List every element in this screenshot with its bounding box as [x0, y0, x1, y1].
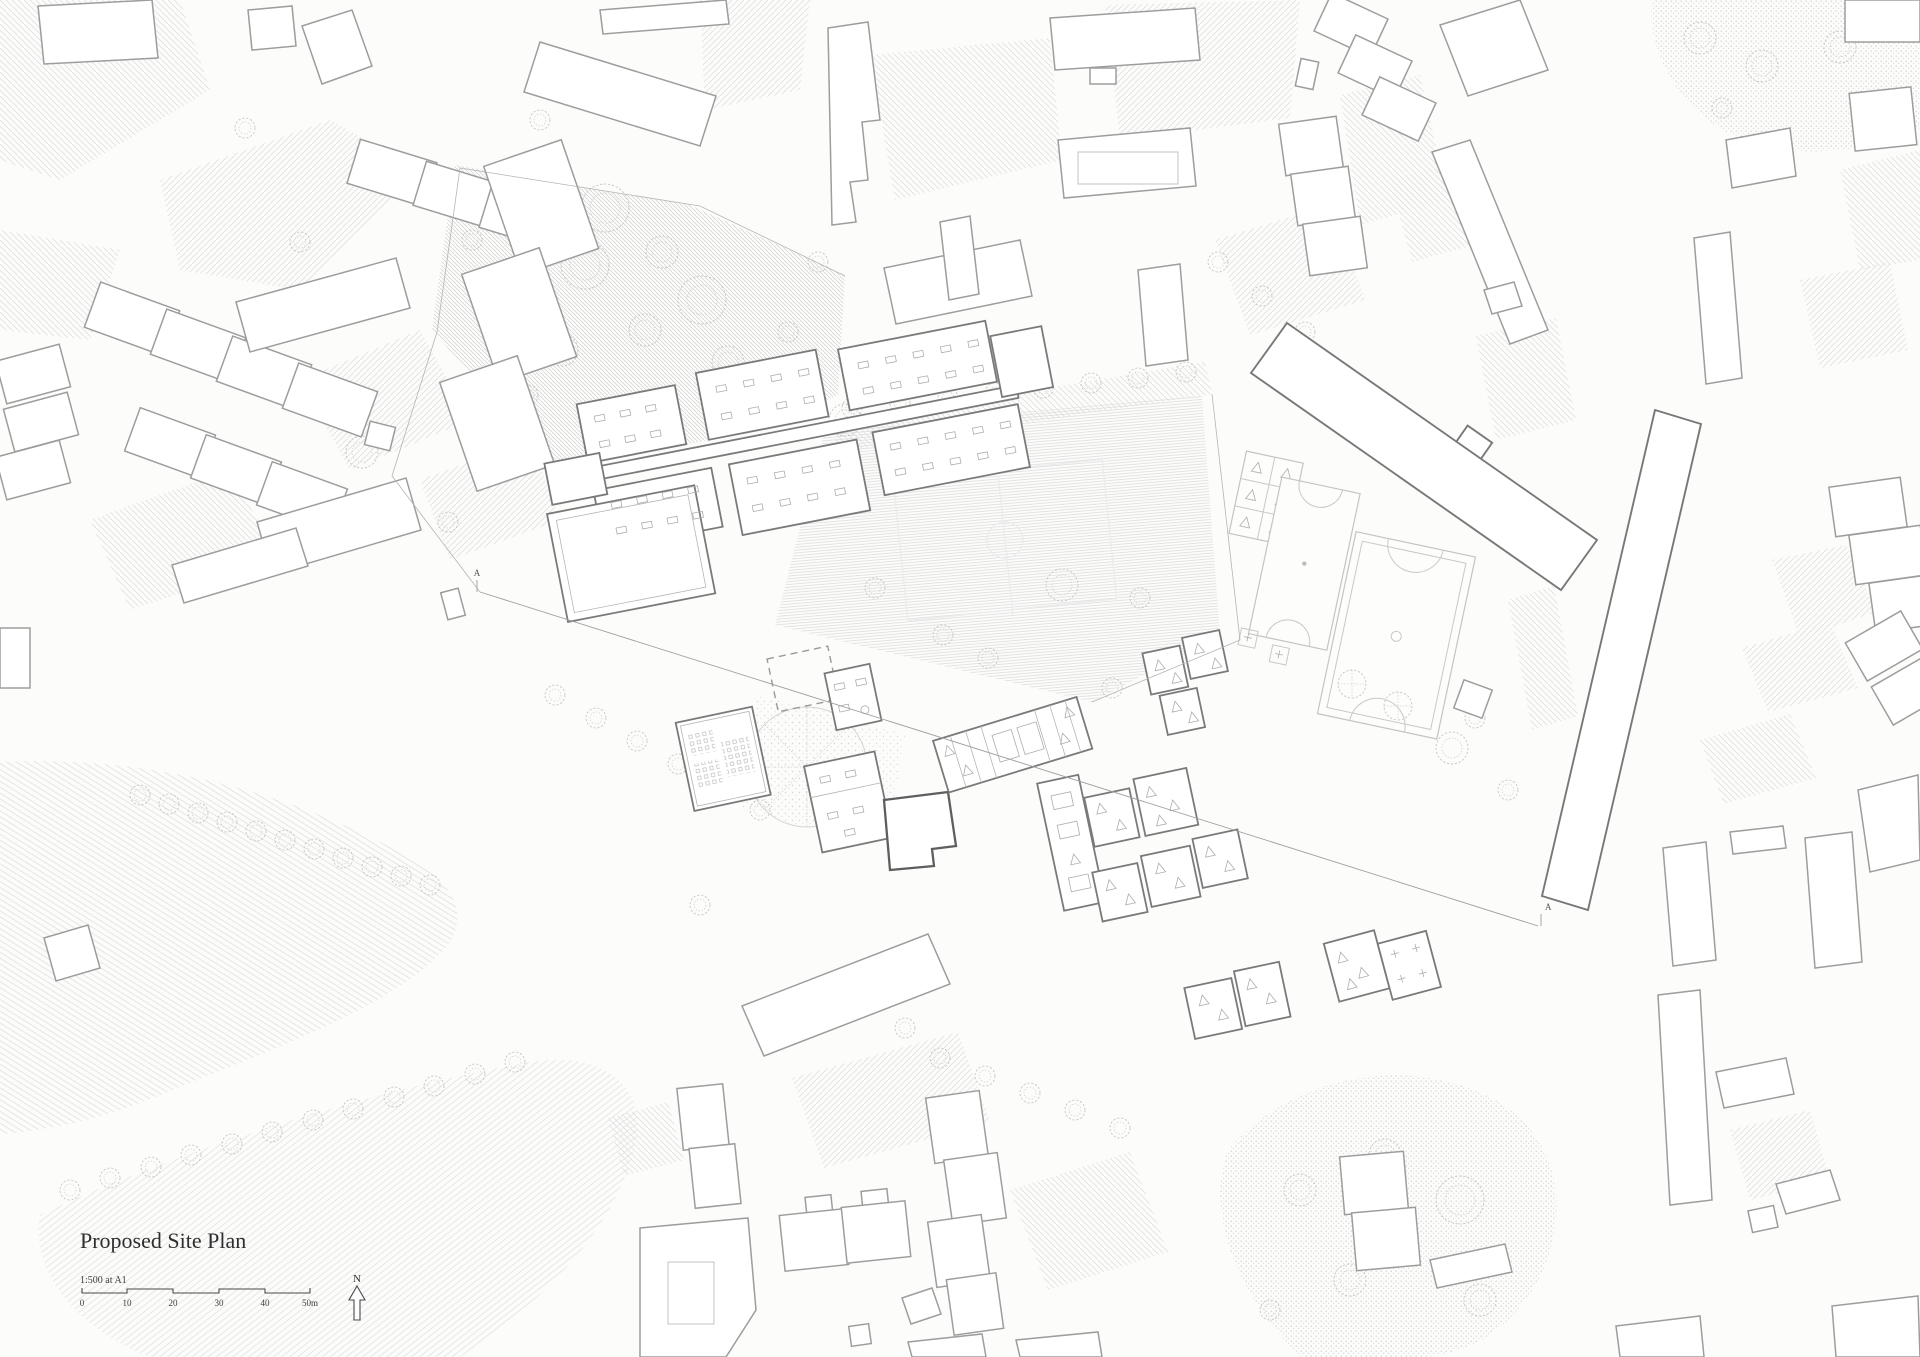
building — [1058, 128, 1196, 198]
main-new-building — [884, 792, 956, 870]
kiosk — [1454, 680, 1492, 718]
scale-tick: 40 — [261, 1298, 271, 1308]
site-plan-sheet: A A Proposed Site Plan 1:500 at A1 0 10 … — [0, 0, 1920, 1357]
building-stepped — [677, 1084, 741, 1208]
building-L-courtyard — [640, 1218, 756, 1357]
scale-note: 1:500 at A1 — [80, 1275, 127, 1286]
building — [302, 10, 372, 84]
site-plan-canvas: A A Proposed Site Plan 1:500 at A1 0 10 … — [0, 0, 1920, 1357]
building — [1726, 128, 1796, 188]
building-small — [902, 1288, 941, 1324]
building — [1016, 1332, 1102, 1357]
building — [1616, 1316, 1704, 1357]
scale-tick: 0 — [80, 1298, 85, 1308]
building-small — [441, 588, 466, 620]
north-label: N — [353, 1273, 361, 1285]
building-stepped — [779, 1189, 911, 1271]
building — [1716, 1058, 1794, 1108]
building — [1663, 842, 1716, 966]
building — [38, 0, 158, 64]
building-serpentine — [926, 1091, 1007, 1336]
building — [1694, 232, 1742, 384]
section-marker-a-start: A — [474, 568, 481, 578]
building — [1138, 264, 1188, 366]
building — [1730, 826, 1786, 854]
building — [908, 1334, 986, 1357]
building-small — [0, 628, 30, 688]
building — [1858, 775, 1920, 872]
building-annex — [1090, 68, 1116, 84]
play-rooms — [1183, 962, 1291, 1039]
building — [1832, 1296, 1920, 1357]
scale-tick: 50m — [302, 1298, 318, 1308]
scale-tick: 20 — [169, 1298, 179, 1308]
building — [828, 22, 880, 225]
building — [524, 42, 716, 146]
chapel-buildings — [1324, 917, 1441, 1013]
building — [1440, 0, 1548, 96]
building — [1845, 0, 1920, 42]
building — [1658, 990, 1712, 1205]
building-small — [1748, 1206, 1778, 1233]
building-small — [1295, 58, 1318, 89]
building — [1805, 832, 1862, 968]
building-small — [849, 1324, 872, 1347]
scale-tick: 30 — [215, 1298, 225, 1308]
building — [742, 934, 950, 1056]
scale-tick: 10 — [123, 1298, 133, 1308]
play-rooms — [1083, 768, 1199, 847]
building-small — [364, 421, 395, 451]
building — [1050, 8, 1200, 70]
classroom-wing — [990, 326, 1053, 397]
page-title: Proposed Site Plan — [80, 1228, 246, 1253]
building — [248, 6, 296, 50]
building-stepped — [1845, 611, 1920, 725]
section-marker-a-end: A — [1545, 902, 1552, 912]
building — [1849, 87, 1917, 151]
building-left-edge — [0, 344, 79, 500]
